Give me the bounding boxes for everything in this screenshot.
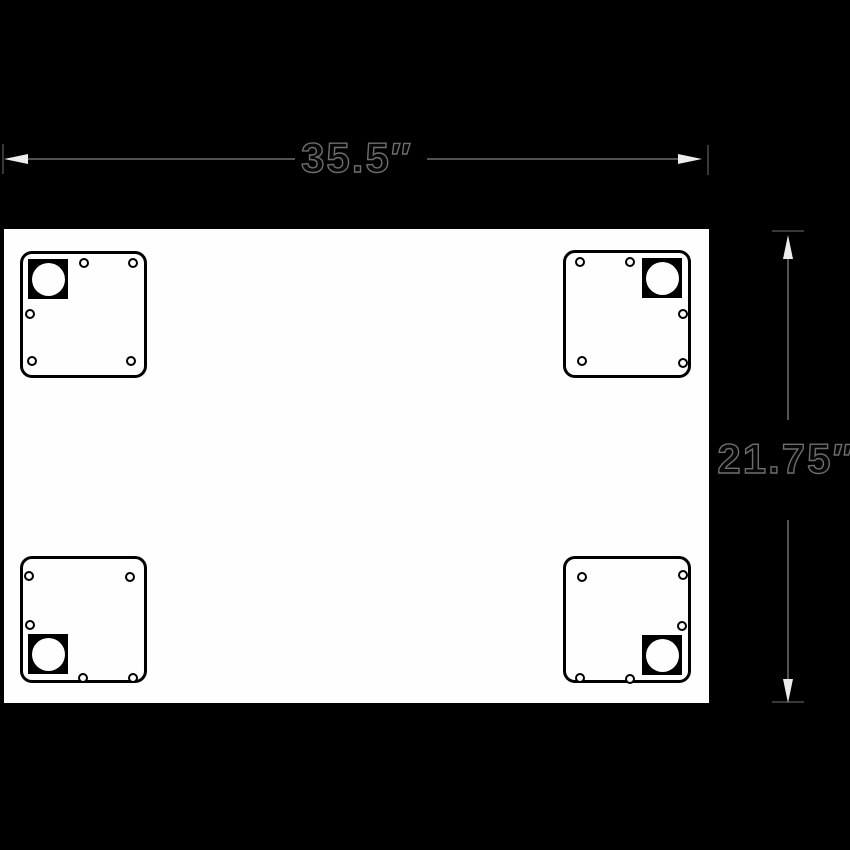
screw-hole — [575, 673, 585, 683]
screw-hole — [27, 356, 37, 366]
screw-hole — [577, 356, 587, 366]
screw-hole — [575, 257, 585, 267]
screw-hole — [577, 572, 587, 582]
corner-bracket-bottom-right — [563, 556, 691, 683]
height-extension-tick-top — [772, 230, 804, 232]
screw-hole — [128, 673, 138, 683]
corner-bracket-top-right — [563, 250, 691, 378]
corner-bracket-top-left — [20, 251, 147, 378]
screw-hole — [678, 570, 688, 580]
screw-hole — [126, 356, 136, 366]
height-dimension-line-bottom — [787, 520, 789, 679]
screw-hole — [678, 309, 688, 319]
width-dimension-line-left — [25, 158, 295, 160]
screw-hole — [24, 571, 34, 581]
leg-socket-circle — [646, 639, 679, 672]
screw-hole — [128, 258, 138, 268]
leg-socket-circle — [32, 638, 65, 671]
screw-hole — [625, 674, 635, 684]
technical-drawing: 35.5″ 21.75″ — [0, 0, 850, 850]
width-dimension-line-right — [427, 158, 684, 160]
down-arrowhead-icon — [783, 679, 793, 703]
leg-socket — [28, 634, 68, 674]
leg-socket — [642, 258, 682, 298]
leg-socket-circle — [646, 262, 679, 295]
screw-hole — [79, 258, 89, 268]
screw-hole — [25, 620, 35, 630]
screw-hole — [78, 673, 88, 683]
leg-socket — [28, 259, 68, 299]
screw-hole — [677, 621, 687, 631]
screw-hole — [125, 572, 135, 582]
up-arrowhead-icon — [783, 235, 793, 259]
leg-socket — [642, 635, 682, 675]
height-dimension-line-top — [787, 258, 789, 420]
right-arrowhead-icon — [678, 154, 702, 164]
screw-hole — [678, 358, 688, 368]
screw-hole — [25, 309, 35, 319]
screw-hole — [625, 257, 635, 267]
height-dimension-label: 21.75″ — [717, 435, 850, 483]
width-dimension-label: 35.5″ — [301, 134, 413, 182]
width-extension-tick-right — [707, 145, 709, 175]
leg-socket-circle — [32, 263, 65, 296]
left-arrowhead-icon — [4, 154, 28, 164]
corner-bracket-bottom-left — [20, 556, 147, 683]
